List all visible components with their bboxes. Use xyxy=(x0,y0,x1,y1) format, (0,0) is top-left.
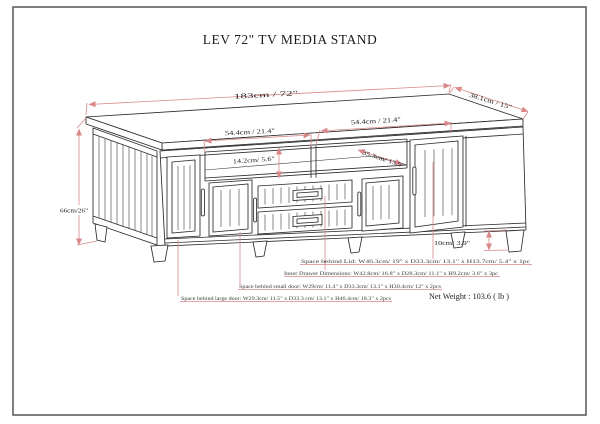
note-space-behind-lid: Space behind Lid: W46.3cm/ 19" x D33.3cm… xyxy=(301,259,531,265)
small-left-door-handle xyxy=(254,198,257,222)
dim-label-total-height: 66cm/26" xyxy=(60,208,88,215)
right-door-handle xyxy=(413,167,416,195)
small-right-door xyxy=(358,176,403,231)
back-left-leg xyxy=(95,224,107,242)
dim-label-leg-height: 10cm/ 3.9" xyxy=(434,240,471,247)
note-space-behind-large-door: Space behind large door: W29.3cm/ 11.5" … xyxy=(181,296,392,302)
left-large-door xyxy=(167,155,205,238)
net-weight-label: Net Weight : 103.6 ( lb ) xyxy=(429,292,509,301)
note-inner-drawer-dimensions: Inner Drawer Dimensions: W42.8cm/ 16.8" … xyxy=(284,271,499,277)
left-door-handle xyxy=(201,189,204,216)
tv-stand-drawing xyxy=(86,94,526,262)
front-right-leg xyxy=(506,230,524,252)
page-title: LEV 72" TV MEDIA STAND xyxy=(203,32,377,47)
spec-sheet-page: LEV 72" TV MEDIA STAND xyxy=(0,0,600,424)
right-large-door xyxy=(410,136,463,233)
front-leg xyxy=(348,237,362,253)
small-right-door-handle xyxy=(358,192,361,216)
front-left-leg xyxy=(151,245,168,262)
drawing-canvas: LEV 72" TV MEDIA STAND xyxy=(0,0,600,424)
dim-label-total-width: 183cm / 72" xyxy=(234,89,299,100)
front-leg xyxy=(253,241,267,257)
note-space-behind-small-door: Space behind small door: W29cm/ 11.4" x … xyxy=(239,284,442,290)
small-left-door xyxy=(209,180,257,236)
